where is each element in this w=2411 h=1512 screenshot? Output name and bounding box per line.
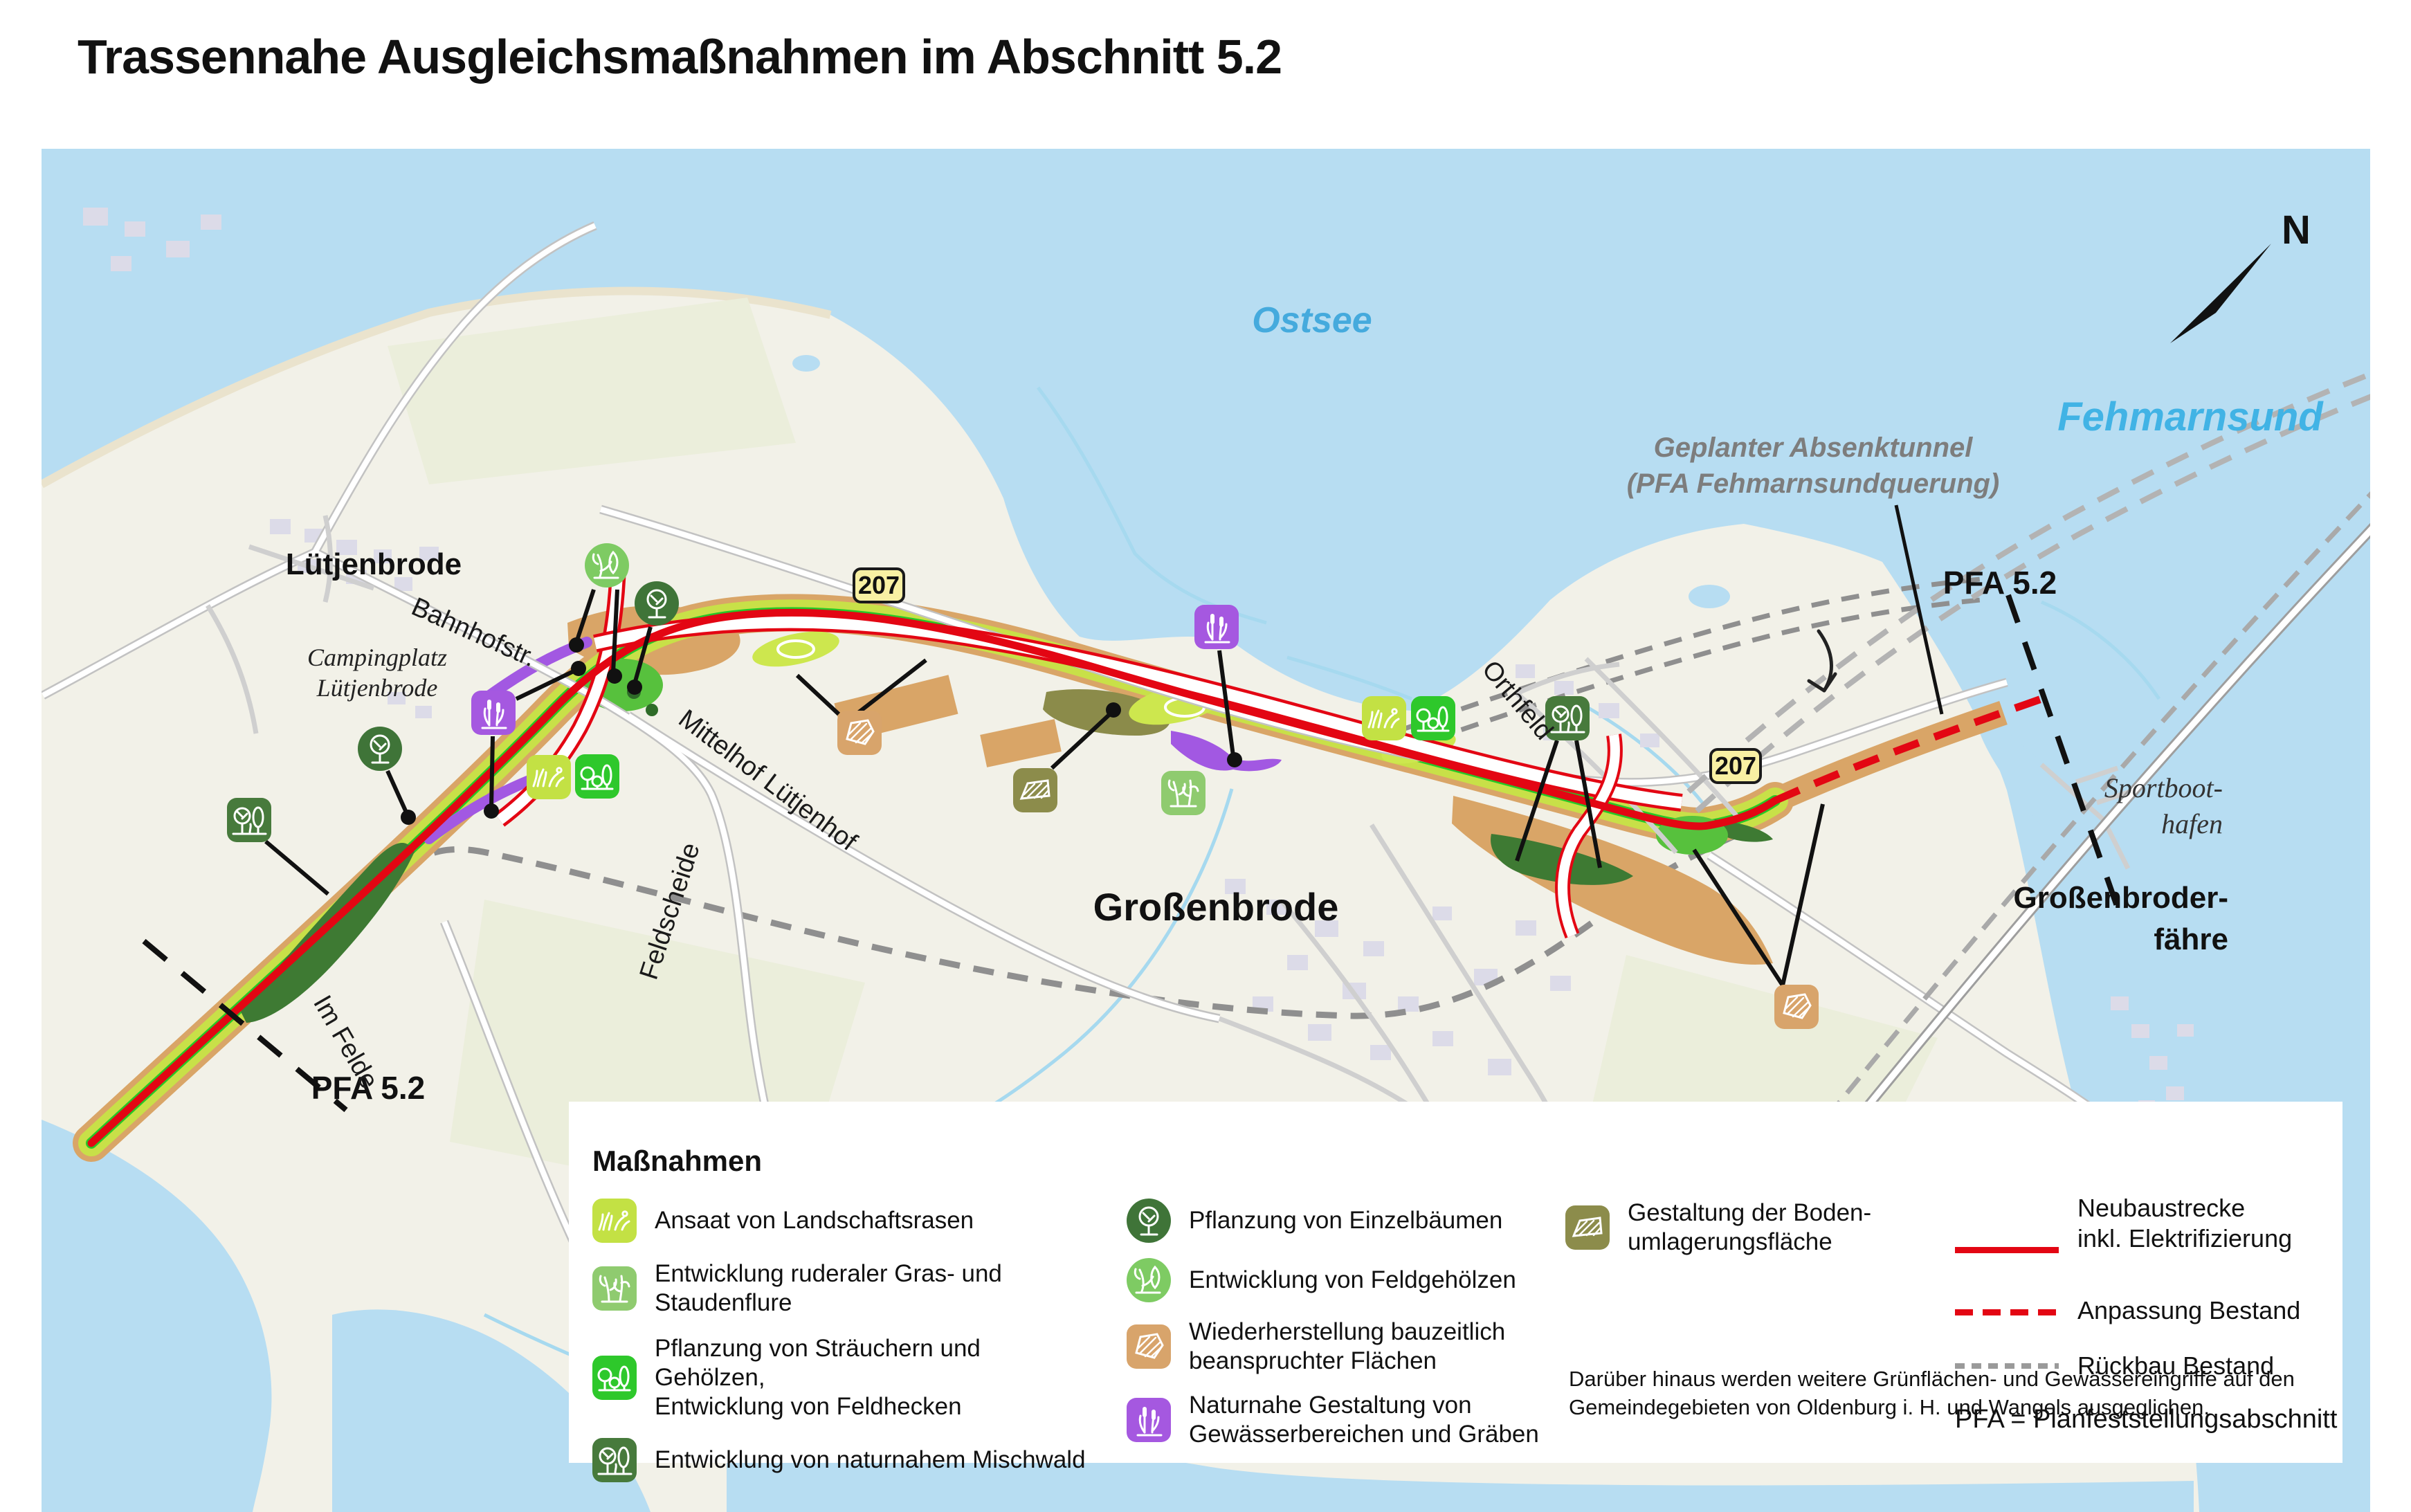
staudenflure-icon (592, 1266, 637, 1311)
legend-item-gewaesser: Naturnahe Gestaltung vonGewässerbereiche… (1127, 1391, 1556, 1449)
ostsee-label: Ostsee (1252, 300, 1372, 340)
legend-column-3: Gestaltung der Boden-umlagerungsfläche (1565, 1199, 1967, 1257)
gewaesser-icon (1127, 1398, 1171, 1442)
badge-207-label: 207 (858, 571, 900, 599)
tunnel-note-line1: Geplanter Absenktunnel (1654, 432, 1974, 463)
bodenumlagerung-icon (1013, 768, 1057, 812)
legend-item-mischwald: Entwicklung von naturnahem Mischwald (592, 1438, 1091, 1482)
legend-item-label: Entwicklung von naturnahem Mischwald (655, 1446, 1086, 1473)
legend-item-label: umlagerungsfläche (1628, 1228, 1871, 1257)
legend-item-label: Ansaat von Landschaftsrasen (655, 1207, 974, 1234)
fehmarnsund-label: Fehmarnsund (2057, 394, 2324, 439)
legend-item-bauzeitlich: Wiederherstellung bauzeitlichbeansprucht… (1127, 1318, 1556, 1376)
legend-item-label: Entwicklung von Feldgehölzen (1189, 1266, 1516, 1293)
faehre-label-line2: fähre (2154, 922, 2228, 956)
legend-item-label: Entwicklung von Feldhecken (655, 1392, 1091, 1421)
bodenumlagerung-icon (1565, 1205, 1610, 1250)
camping-label-line1: Campingplatz (307, 644, 447, 671)
north-label: N (2282, 208, 2311, 253)
straeucher-icon (1411, 696, 1455, 740)
faehre-label-line1: Großenbroder- (2014, 881, 2228, 915)
bauzeitlich-icon (1774, 985, 1819, 1029)
luetjenbrode-label: Lütjenbrode (286, 547, 462, 581)
camping-label-line2: Lütjenbrode (316, 674, 438, 702)
gewaesser-icon (471, 691, 516, 735)
page-title: Trassennahe Ausgleichsmaßnahmen im Absch… (78, 29, 1282, 84)
legend-item-label: Wiederherstellung bauzeitlich (1189, 1318, 1505, 1347)
legend-item-landschaftsrasen: Ansaat von Landschaftsrasen (592, 1199, 1091, 1243)
feldgehoelze-icon (1127, 1258, 1171, 1302)
legend-column-1: Ansaat von Landschaftsrasen Entwicklung … (592, 1199, 1091, 1482)
legend-item-label: Naturnahe Gestaltung von (1189, 1391, 1539, 1420)
bauzeitlich-icon (1127, 1324, 1171, 1369)
legend-item-feldgehoelze: Entwicklung von Feldgehölzen (1127, 1258, 1556, 1302)
road-badge-207-east: 207 (1711, 749, 1761, 783)
mischwald-icon (592, 1438, 637, 1482)
straeucher-icon (575, 754, 619, 799)
footnote-line: Gemeindegebieten von Oldenburg i. H. und… (1569, 1393, 2337, 1421)
legend-item-label: Pflanzung von Einzelbäumen (1189, 1207, 1502, 1234)
legend-item-label: Entwicklung ruderaler Gras- und (655, 1259, 1002, 1288)
legend-item-label: Gestaltung der Boden- (1628, 1199, 1871, 1228)
legend-item-einzelbaeume: Pflanzung von Einzelbäumen (1127, 1199, 1556, 1243)
einzelbaeume-icon (1127, 1199, 1171, 1243)
footnote-line: Darüber hinaus werden weitere Grünfläche… (1569, 1365, 2337, 1393)
grossenbrode-label: Großenbrode (1093, 885, 1339, 929)
pfa-label-right: PFA 5.2 (1943, 565, 2057, 601)
legend-panel: Maßnahmen Ansaat von Landschaftsrasen En… (569, 1102, 2342, 1463)
einzelbaeume-icon (635, 581, 679, 626)
straeucher-icon (592, 1356, 637, 1400)
road-badge-207-west: 207 (854, 569, 904, 602)
marina-label-line2: hafen (2161, 808, 2223, 839)
landschaftsrasen-icon (592, 1199, 637, 1243)
legend-item-straeucher: Pflanzung von Sträuchern und Gehölzen,En… (592, 1334, 1091, 1421)
legend-item-label: Pflanzung von Sträuchern und Gehölzen, (655, 1334, 1091, 1392)
einzelbaeume-icon (358, 727, 402, 771)
mischwald-icon (227, 798, 271, 842)
legend-footnote: Darüber hinaus werden weitere Grünfläche… (1569, 1365, 2337, 1421)
badge-207-label: 207 (1715, 752, 1756, 780)
feldgehoelze-icon (585, 543, 629, 588)
legend-column-2: Pflanzung von Einzelbäumen Entwicklung v… (1127, 1199, 1556, 1449)
landschaftsrasen-icon (1362, 696, 1406, 740)
gewaesser-icon (1194, 605, 1239, 649)
landschaftsrasen-icon (527, 755, 571, 799)
legend-item-bodenumlagerung: Gestaltung der Boden-umlagerungsfläche (1565, 1199, 1967, 1257)
tunnel-note-line2: (PFA Fehmarnsundquerung) (1627, 468, 2000, 499)
legend-item-staudenflure: Entwicklung ruderaler Gras- undStaudenfl… (592, 1259, 1091, 1318)
legend-item-label: Gewässerbereichen und Gräben (1189, 1420, 1539, 1449)
staudenflure-icon (1161, 771, 1205, 815)
legend-item-label: beanspruchter Flächen (1189, 1347, 1505, 1376)
legend-item-label: Staudenflure (655, 1288, 1002, 1318)
legend-title: Maßnahmen (592, 1145, 762, 1178)
bauzeitlich-icon (837, 711, 882, 755)
marina-label-line1: Sportboot- (2104, 772, 2223, 803)
